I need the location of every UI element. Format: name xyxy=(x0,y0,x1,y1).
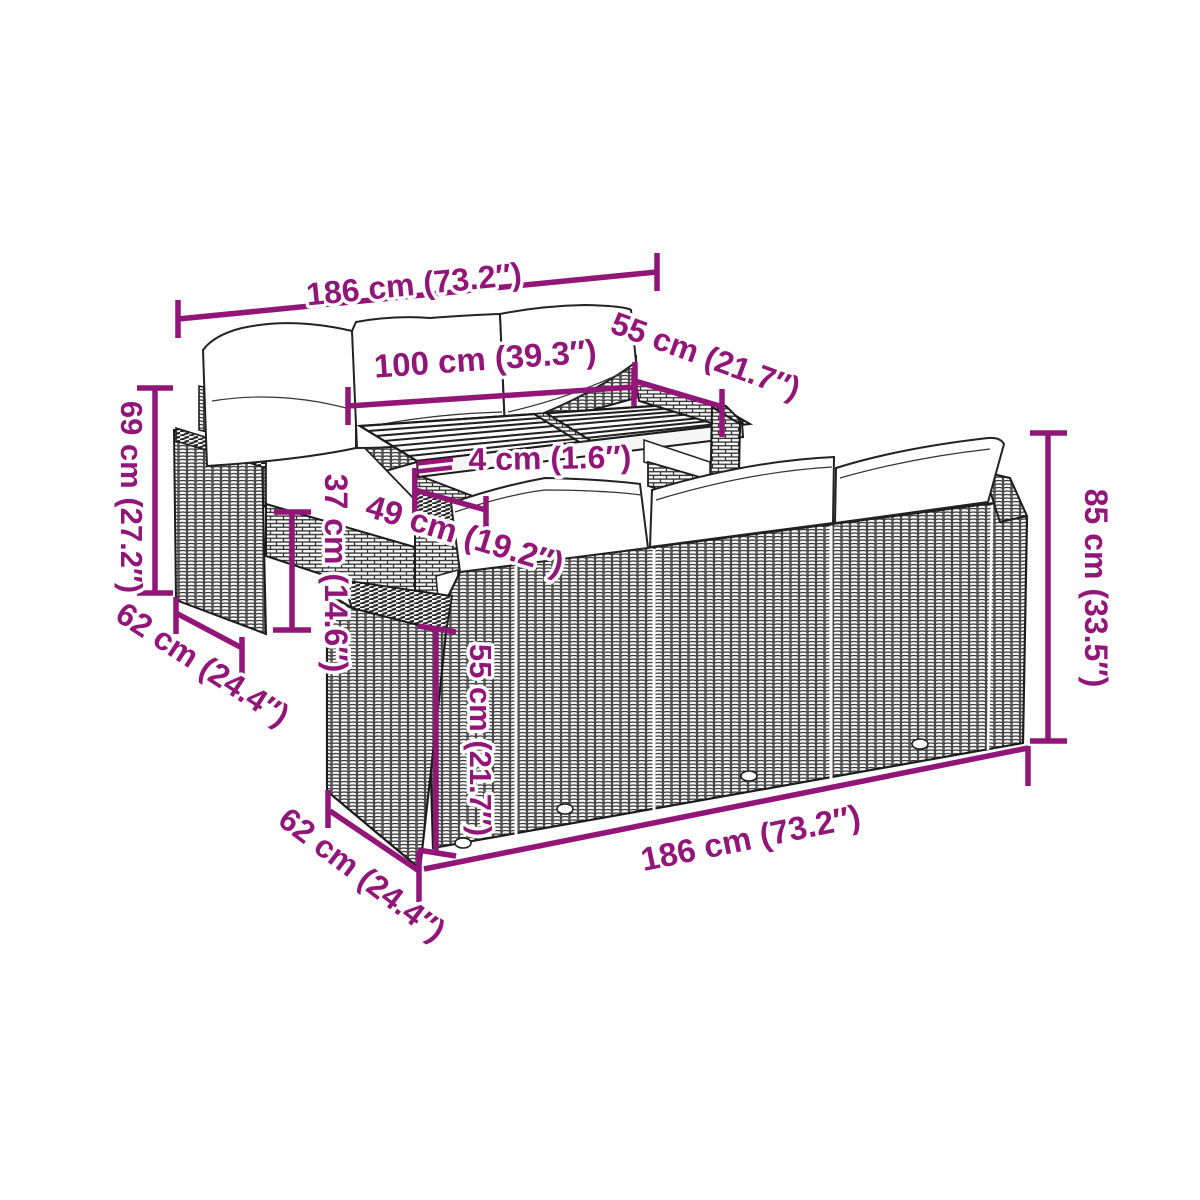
svg-text:85 cm (33.5″): 85 cm (33.5″) xyxy=(1078,489,1114,688)
svg-text:69 cm (27.2″): 69 cm (27.2″) xyxy=(114,401,149,593)
svg-text:55 cm (21.7″): 55 cm (21.7″) xyxy=(463,644,498,836)
svg-text:37 cm (14.6″): 37 cm (14.6″) xyxy=(318,474,354,673)
svg-text:4 cm (1.6″): 4 cm (1.6″) xyxy=(468,439,632,478)
